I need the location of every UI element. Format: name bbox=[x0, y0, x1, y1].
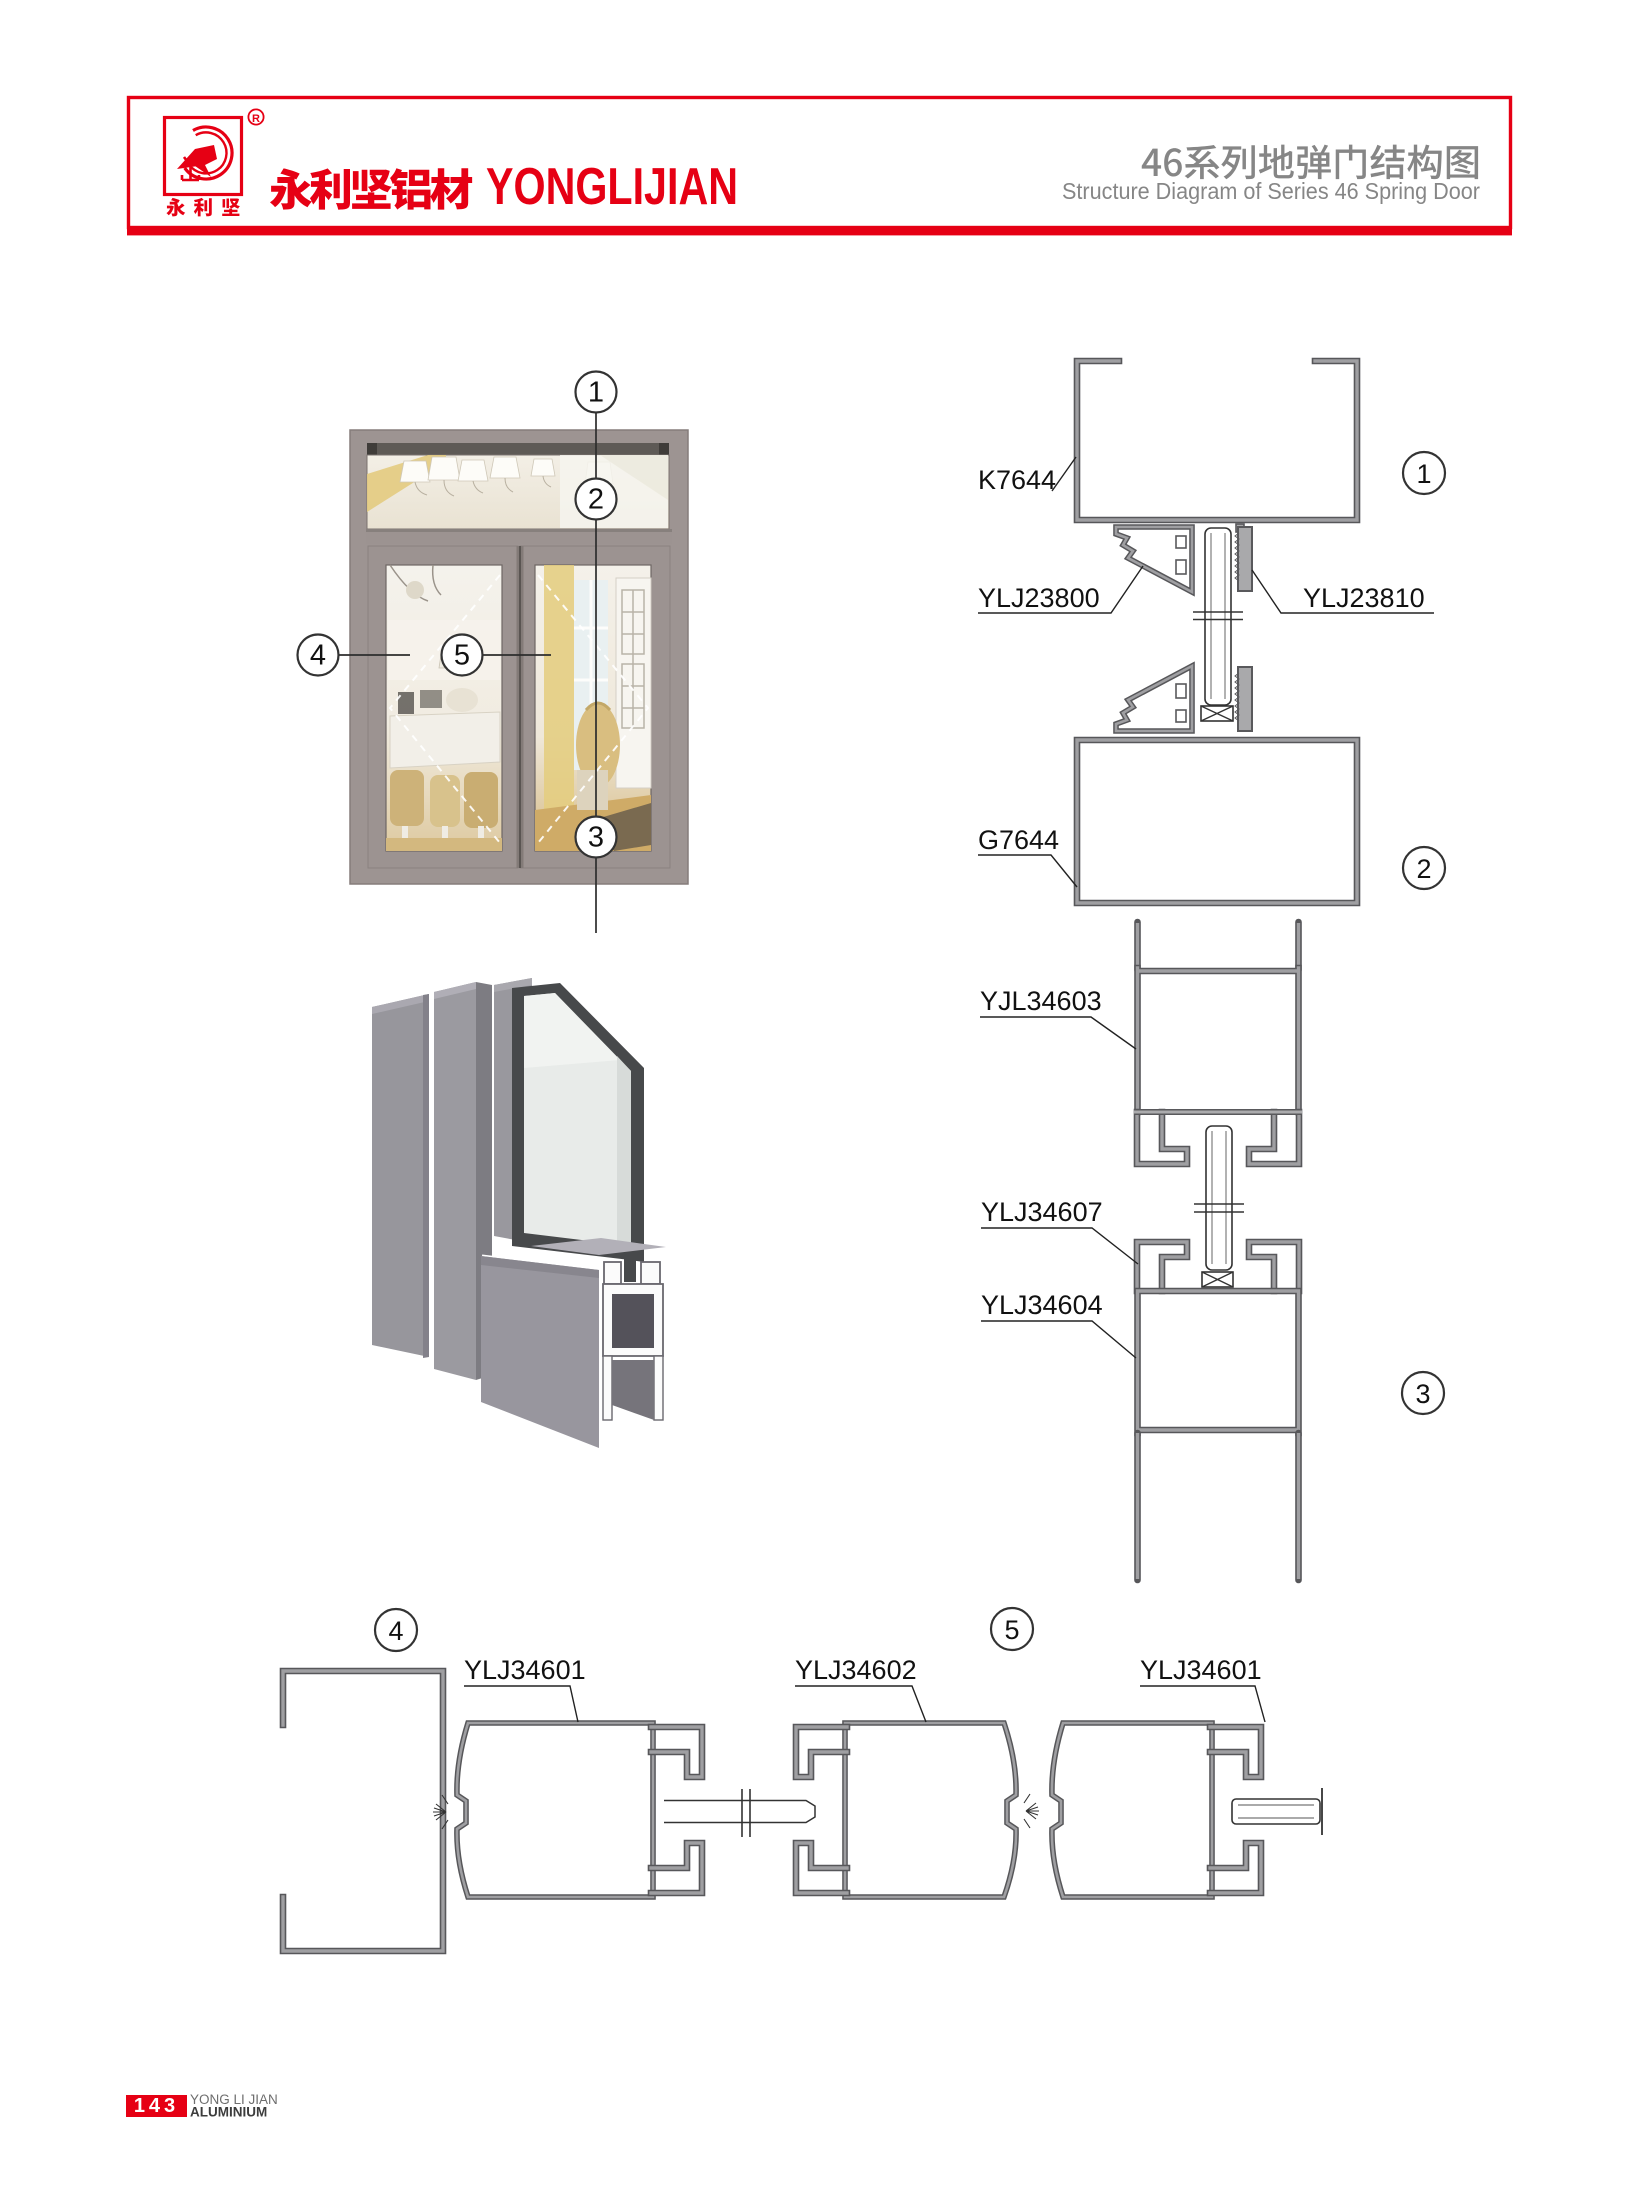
svg-text:YLJ23800: YLJ23800 bbox=[978, 583, 1100, 613]
svg-text:2: 2 bbox=[1416, 854, 1431, 884]
svg-text:4: 4 bbox=[310, 640, 326, 672]
svg-text:2: 2 bbox=[588, 484, 604, 516]
svg-text:3: 3 bbox=[588, 822, 604, 854]
svg-text:R: R bbox=[252, 113, 260, 125]
svg-text:YLJ34604: YLJ34604 bbox=[981, 1290, 1103, 1320]
svg-text:YLJ34601: YLJ34601 bbox=[464, 1655, 586, 1685]
svg-text:ALUMINIUM: ALUMINIUM bbox=[190, 2105, 267, 2120]
svg-text:YLJ34607: YLJ34607 bbox=[981, 1197, 1103, 1227]
svg-text:Structure Diagram of Series 46: Structure Diagram of Series 46 Spring Do… bbox=[1062, 178, 1480, 204]
svg-text:5: 5 bbox=[454, 640, 470, 672]
svg-text:1: 1 bbox=[588, 377, 604, 409]
svg-text:YLJ23810: YLJ23810 bbox=[1303, 583, 1425, 613]
svg-text:1: 1 bbox=[1416, 459, 1431, 489]
svg-text:K7644: K7644 bbox=[978, 465, 1056, 495]
svg-text:5: 5 bbox=[1004, 1615, 1019, 1645]
svg-text:G7644: G7644 bbox=[978, 825, 1059, 855]
svg-text:YLJ34602: YLJ34602 bbox=[795, 1655, 917, 1685]
svg-text:YLJ34601: YLJ34601 bbox=[1140, 1655, 1262, 1685]
svg-text:YONGLIJIAN: YONGLIJIAN bbox=[486, 158, 738, 216]
svg-text:4: 4 bbox=[388, 1616, 403, 1646]
svg-text:YJL34603: YJL34603 bbox=[980, 986, 1102, 1016]
svg-text:143: 143 bbox=[134, 2095, 179, 2117]
svg-text:3: 3 bbox=[1415, 1379, 1430, 1409]
